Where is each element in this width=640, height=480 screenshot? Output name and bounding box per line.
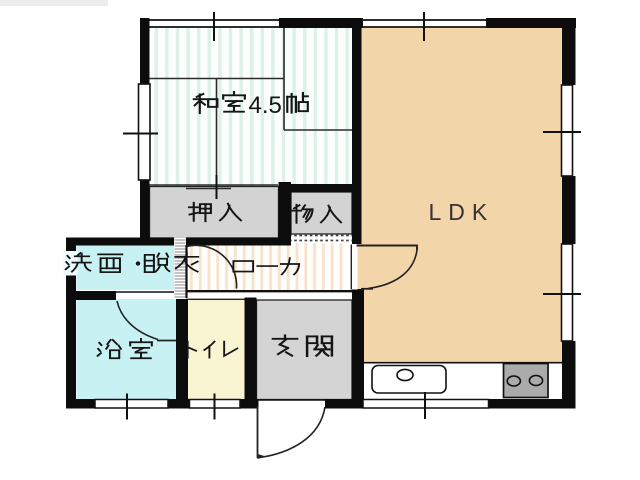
svg-text:4.5: 4.5: [249, 92, 282, 119]
svg-text:LDK: LDK: [429, 199, 495, 225]
